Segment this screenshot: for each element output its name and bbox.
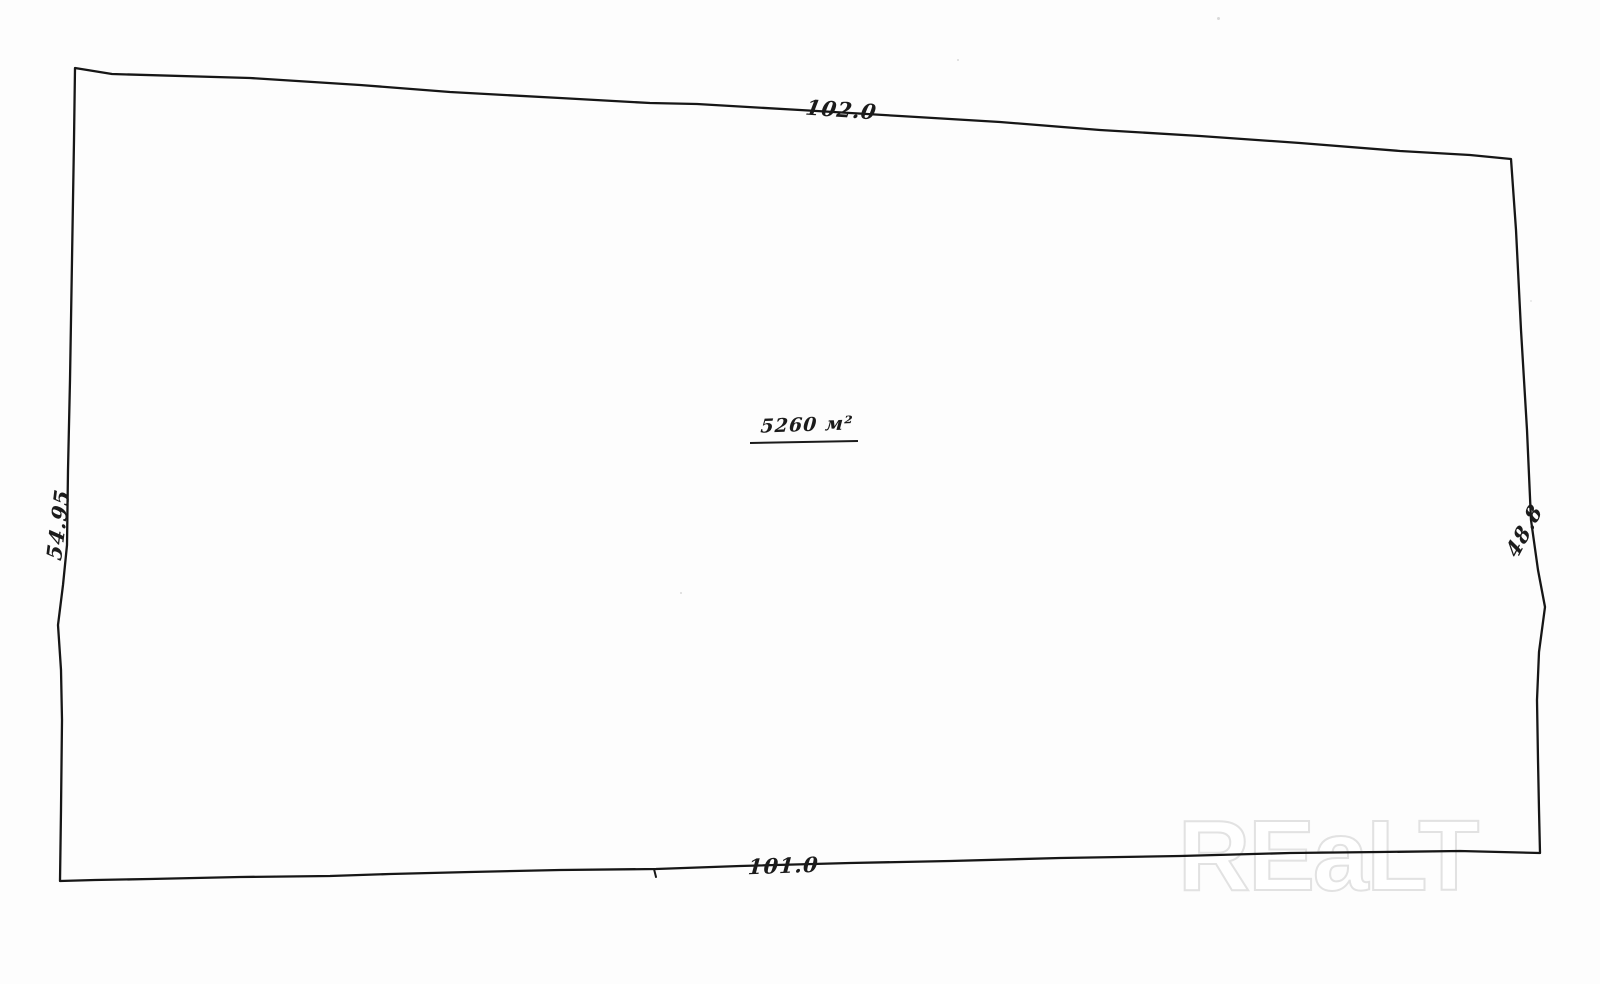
scan-speck: [1217, 17, 1220, 20]
bottom-side-dimension-label: 101.0: [747, 852, 819, 880]
plot-area-label: 5260 м²: [751, 412, 862, 438]
scan-speck: [680, 592, 682, 594]
scan-speck: [1530, 300, 1532, 302]
top-side-dimension-label: 102.0: [804, 95, 878, 125]
plot-boundary-outline: [58, 68, 1545, 881]
scan-speck: [957, 59, 959, 61]
plot-outline-drawing: [0, 0, 1600, 984]
survey-tick: [654, 869, 656, 877]
scanned-land-plot-sketch: REaLT 102.0 101.0 54.95 48.8 5260 м²: [0, 0, 1600, 984]
